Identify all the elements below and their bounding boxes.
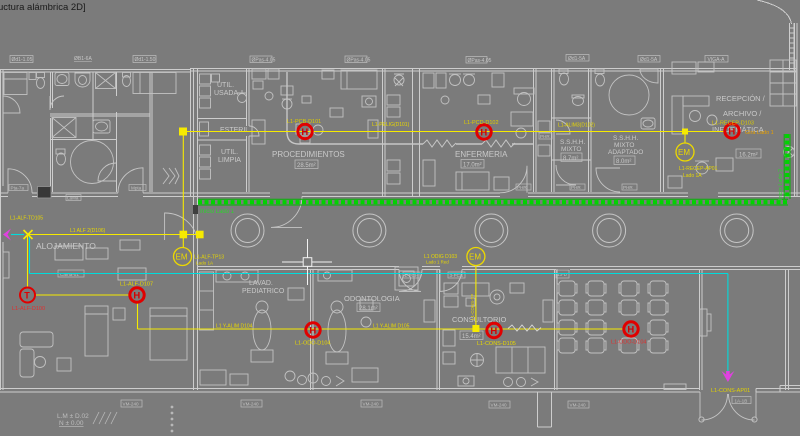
svg-text:VIGA-A: VIGA-A — [708, 57, 726, 63]
svg-text:Gira Lado 1: Gira Lado 1 — [745, 130, 774, 136]
svg-text:H: H — [301, 127, 308, 138]
svg-text:ESTERIL.: ESTERIL. — [220, 127, 251, 134]
svg-text:L1-ALF-D107: L1-ALF-D107 — [120, 282, 153, 288]
svg-text:uctura alámbrica 2D]: uctura alámbrica 2D] — [0, 2, 86, 13]
svg-text:ARCHIVO /: ARCHIVO / — [723, 109, 762, 118]
svg-text:Lado 1A: Lado 1A — [196, 261, 214, 266]
svg-text:S.S.H.H.: S.S.H.H. — [560, 139, 585, 146]
svg-text:L1-ODO-D104: L1-ODO-D104 — [611, 340, 646, 346]
svg-text:Inicio Lado 2: Inicio Lado 2 — [778, 169, 784, 200]
svg-text:Cama-01: Cama-01 — [60, 272, 79, 277]
svg-text:UTIL.: UTIL. — [217, 82, 234, 89]
svg-text:Lado 1 Red: Lado 1 Red — [426, 260, 449, 265]
svg-text:H: H — [133, 290, 140, 301]
svg-text:VM-240: VM-240 — [491, 403, 508, 408]
svg-text:13-D: 13-D — [557, 272, 568, 277]
svg-text:L1-ALIM3(D102): L1-ALIM3(D102) — [558, 123, 595, 129]
svg-text:L1-ALF-TD105: L1-ALF-TD105 — [10, 216, 43, 222]
svg-text:L1-RECEP-D103: L1-RECEP-D103 — [712, 121, 754, 127]
svg-text:L1-CONS-TP: L1-CONS-TP — [470, 294, 475, 320]
svg-text:15.4m²: 15.4m² — [462, 334, 481, 340]
svg-text:USADA: USADA — [214, 90, 238, 97]
svg-text:L1-CONS-D105: L1-CONS-D105 — [477, 341, 516, 347]
svg-text:28.1m²: 28.1m² — [359, 306, 378, 312]
svg-text:Lado 1A: Lado 1A — [683, 173, 702, 179]
svg-text:MIXTO: MIXTO — [614, 142, 634, 149]
svg-text:PHR: PHR — [623, 185, 633, 190]
svg-text:L1-RECEP-AP01: L1-RECEP-AP01 — [679, 166, 718, 172]
svg-text:8.7m²: 8.7m² — [563, 156, 578, 162]
svg-text:LIMPIA: LIMPIA — [218, 157, 241, 164]
svg-text:VM-240: VM-240 — [243, 402, 260, 407]
svg-text:L1-PELIG(D101): L1-PELIG(D101) — [372, 122, 410, 128]
svg-text:ENFERMERIA: ENFERMERIA — [455, 150, 508, 159]
svg-text:Ød1-5A: Ød1-5A — [568, 56, 586, 62]
svg-text:VM-240: VM-240 — [363, 402, 380, 407]
svg-text:MIXTO: MIXTO — [561, 146, 581, 153]
svg-text:ØPas-4.05: ØPas-4.05 — [468, 58, 492, 64]
svg-text:28.5m²: 28.5m² — [297, 163, 316, 169]
svg-text:Ød1-5A: Ød1-5A — [640, 57, 658, 63]
svg-text:PHR: PHR — [517, 185, 527, 190]
svg-text:RECEPCIÓN /: RECEPCIÓN / — [716, 94, 766, 103]
svg-text:CONSULTORIO: CONSULTORIO — [452, 315, 506, 324]
svg-text:PHR: PHR — [540, 134, 550, 139]
svg-text:Mpta: Mpta — [131, 186, 142, 191]
svg-text:PHR: PHR — [571, 185, 581, 190]
svg-text:EM: EM — [176, 253, 188, 262]
svg-text:S.S.H.H.: S.S.H.H. — [613, 135, 638, 142]
svg-text:ØB1-6A: ØB1-6A — [74, 56, 92, 62]
svg-text:8.0m²: 8.0m² — [616, 159, 631, 165]
svg-text:LAVAD.: LAVAD. — [249, 280, 273, 287]
svg-text:EM: EM — [469, 253, 481, 262]
svg-text:PEDIATRICO: PEDIATRICO — [242, 288, 285, 295]
svg-text:Pta-7a: Pta-7a — [11, 186, 25, 191]
svg-text:ADAPTADO: ADAPTADO — [608, 149, 643, 156]
svg-text:Inicio Lado 1: Inicio Lado 1 — [200, 209, 235, 215]
svg-text:LaMa: LaMa — [67, 196, 79, 201]
svg-text:L1 ALF 2(D106): L1 ALF 2(D106) — [70, 228, 106, 234]
svg-text:L1-CONS-AP01: L1-CONS-AP01 — [711, 388, 750, 394]
svg-text:H: H — [490, 326, 497, 337]
svg-text:L1-PCD-D102: L1-PCD-D102 — [464, 120, 499, 126]
svg-text:L1 Y-ALIM D105: L1 Y-ALIM D105 — [373, 324, 410, 330]
svg-text:UTIL.: UTIL. — [221, 149, 238, 156]
svg-text:H: H — [480, 127, 487, 138]
svg-text:N ± 0.00: N ± 0.00 — [59, 420, 84, 427]
svg-text:PROCEDIMIENTOS: PROCEDIMIENTOS — [272, 150, 345, 159]
svg-text:H: H — [728, 126, 735, 137]
svg-text:T: T — [24, 291, 30, 301]
svg-text:17.0m²: 17.0m² — [463, 163, 482, 169]
svg-text:ØPas-4.05: ØPas-4.05 — [252, 58, 276, 64]
svg-text:ØPas-4.05: ØPas-4.05 — [347, 58, 371, 64]
svg-text:EM: EM — [678, 148, 690, 157]
svg-text:ALOJAMIENTO: ALOJAMIENTO — [36, 241, 96, 251]
svg-text:VM-240: VM-240 — [123, 402, 140, 407]
svg-text:L1-ODO-D104: L1-ODO-D104 — [295, 341, 330, 347]
svg-text:H: H — [627, 324, 634, 335]
svg-text:Ød1-1.50: Ød1-1.50 — [135, 57, 156, 63]
svg-text:L.M ± D.02: L.M ± D.02 — [57, 413, 89, 420]
svg-text:16.2m²: 16.2m² — [739, 153, 758, 159]
svg-text:ODONTOLOGIA: ODONTOLOGIA — [344, 294, 400, 303]
svg-text:H: H — [309, 325, 316, 336]
svg-text:L1-PCB-D101: L1-PCB-D101 — [287, 119, 321, 125]
svg-text:Ød1-1.05: Ød1-1.05 — [12, 57, 33, 63]
svg-text:VM-240: VM-240 — [570, 403, 587, 408]
svg-text:L1 Y-ALIM D104: L1 Y-ALIM D104 — [216, 324, 253, 330]
svg-text:1A-1B: 1A-1B — [735, 399, 748, 404]
svg-text:L1-ALF-D100: L1-ALF-D100 — [12, 306, 45, 312]
